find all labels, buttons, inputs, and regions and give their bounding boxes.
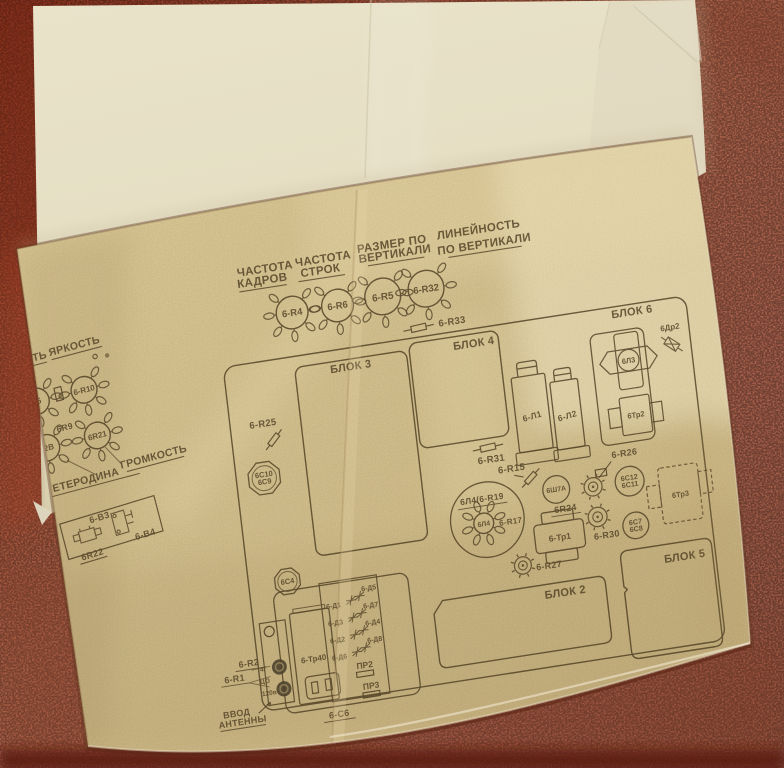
svg-text:4Г: 4Г — [260, 666, 268, 674]
svg-text:ЦО: ЦО — [260, 678, 270, 687]
